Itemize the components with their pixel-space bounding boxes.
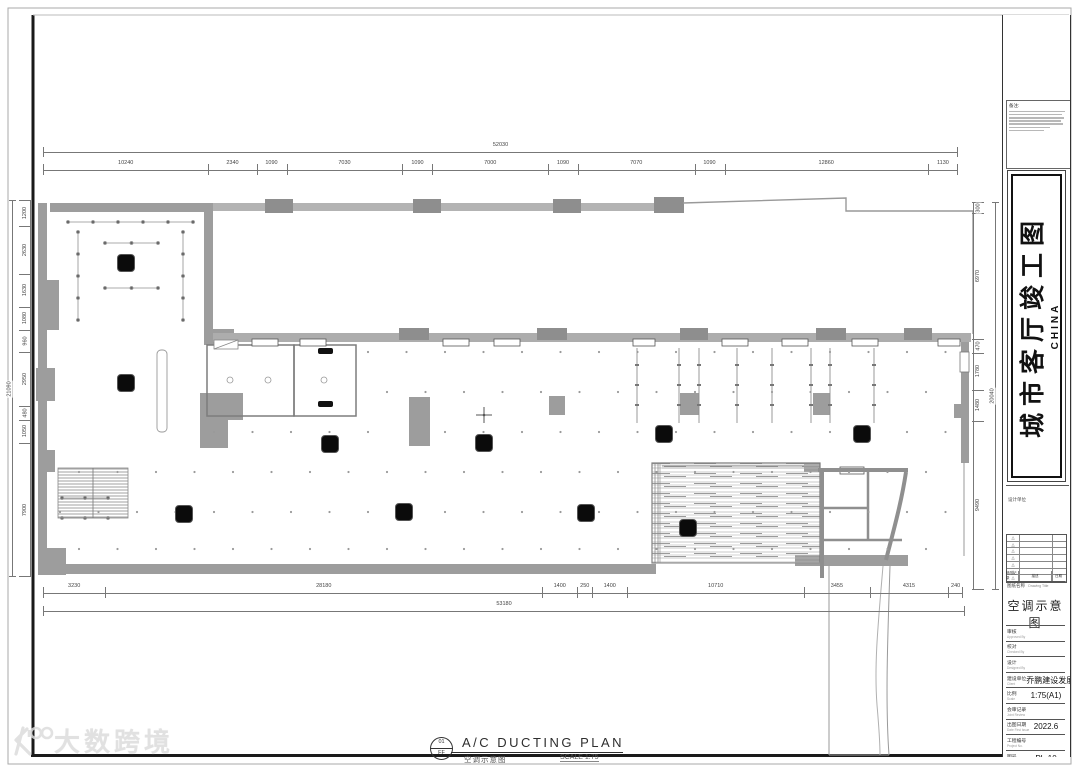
drawing-title-label-en: Drawing Title [1028, 584, 1048, 588]
plan-title-en: A/C DUCTING PLAN [462, 735, 624, 750]
field-value: 乔鹏建设发展有限公司 [1026, 675, 1071, 686]
watermark-logo-icon [10, 724, 54, 758]
ceiling-cassette-ac-unit [176, 506, 193, 523]
watermark: 大数跨境 [10, 722, 174, 759]
title-block-field-row: 审核 Approved By [1006, 625, 1065, 641]
dimension-left-overall: 21090 [3, 200, 16, 577]
project-name-box: 城市客厅竣工图 CHINA [1007, 170, 1066, 482]
dimension-bottom-segments: 323028180140025014001071034554315240 [43, 583, 963, 599]
title-block-field-row: 比例 Scale 1:75(A1) [1006, 687, 1065, 703]
revision-triangle-icon: △ [1007, 548, 1020, 554]
plan-scale: SCALE 1:75 [560, 754, 599, 762]
linear-grilles [635, 348, 876, 423]
revision-row: △ [1007, 542, 1066, 549]
ceiling-cassette-ac-unit [578, 505, 595, 522]
column-blocks [265, 197, 932, 340]
dimension-top-overall: 52030 [43, 142, 958, 156]
title-block-fields: 审核 Approved By 校对 Checked By 设计 [1006, 625, 1065, 757]
top-wall-band [213, 203, 971, 342]
ceiling-cassette-ac-unit [656, 426, 673, 443]
title-block-field-row: 建设单位 Client 乔鹏建设发展有限公司 [1006, 672, 1065, 688]
revision-row: △ [1007, 548, 1066, 555]
ceiling-cassette-ac-unit [396, 504, 413, 521]
dimension-bottom-overall: 53180 [43, 601, 965, 615]
ceiling-cassette-ac-unit [680, 520, 697, 537]
revision-row: △ [1007, 562, 1066, 569]
project-name: 城市客厅竣工图 [1013, 214, 1049, 438]
ceiling-cassette-ac-unit [322, 436, 339, 453]
window-lintels [252, 339, 969, 474]
ceiling-cassette-ac-unit [118, 255, 135, 272]
drawing-title-label: 图纸名称 [1007, 583, 1025, 588]
title-block-field-row: 设计 Designed By [1006, 656, 1065, 672]
crosshair-marker [476, 407, 492, 423]
dimension-left-segments: 1200263016301080960295048010507900 [18, 200, 33, 577]
title-block-field-row: 工程编号 Project No. [1006, 734, 1065, 750]
revision-header: 修改记录 描述 日期 [1006, 571, 1065, 581]
title-block-field-row: 图号 Drawing No. PL-10 [1006, 750, 1065, 757]
ceiling-cassette-ac-unit [854, 426, 871, 443]
title-block-field-row: 出图日期 Date First Issue 2022.6 [1006, 719, 1065, 735]
stamp-label: 设计单位 [1008, 497, 1026, 502]
field-value: 2022.6 [1027, 722, 1065, 731]
plan-title-cn: 空调示意图 [464, 754, 507, 765]
revision-triangle-icon: △ [1007, 535, 1020, 541]
stamp-box: 设计单位 [1006, 485, 1069, 538]
dimension-right-segments: 3006970470178014809490 [971, 202, 986, 590]
wood-deck-terrace [652, 463, 820, 563]
project-name-sub: CHINA [1050, 303, 1061, 350]
revision-triangle-icon: △ [1007, 555, 1020, 561]
revision-row: △ [1007, 555, 1066, 562]
reference-sheet: FF [431, 749, 452, 759]
slot-diffuser [157, 350, 167, 432]
title-underline [451, 752, 623, 753]
reference-number: 01 [431, 738, 452, 749]
field-value: 1:75(A1) [1027, 691, 1065, 700]
revision-triangle-icon: △ [1007, 562, 1020, 568]
ceiling-cassette-ac-unit [118, 375, 135, 392]
dimension-top-segments: 1024023401090703010907000109070701090128… [43, 160, 958, 176]
field-value: PL-10 [1027, 754, 1065, 757]
watermark-text: 大数跨境 [54, 722, 174, 759]
drawing-sheet: 52030 1024023401090703010907000109070701… [0, 0, 1080, 772]
dimension-right-overall: 20040 [986, 202, 999, 590]
notes-title: 备注: [1009, 103, 1068, 109]
hatched-block [58, 468, 128, 518]
floor-plan-drawing [0, 0, 1080, 772]
title-block: 备注: 城市客厅竣工图 CHINA 设计单位 △ [1002, 15, 1071, 757]
notes-block: 备注: [1006, 100, 1071, 169]
title-block-field-row: 会审记录 Joint Review [1006, 703, 1065, 719]
revision-triangle-icon: △ [1007, 542, 1020, 548]
project-name-border: 城市客厅竣工图 CHINA [1011, 174, 1062, 478]
revision-row: △ [1007, 535, 1066, 542]
ceiling-cassette-ac-unit [476, 435, 493, 452]
title-block-field-row: 校对 Checked By [1006, 641, 1065, 657]
drawing-reference-bubble: 01 FF [430, 737, 453, 760]
drawing-title-box: 图纸名称 Drawing Title 空调示意图 [1006, 581, 1065, 626]
